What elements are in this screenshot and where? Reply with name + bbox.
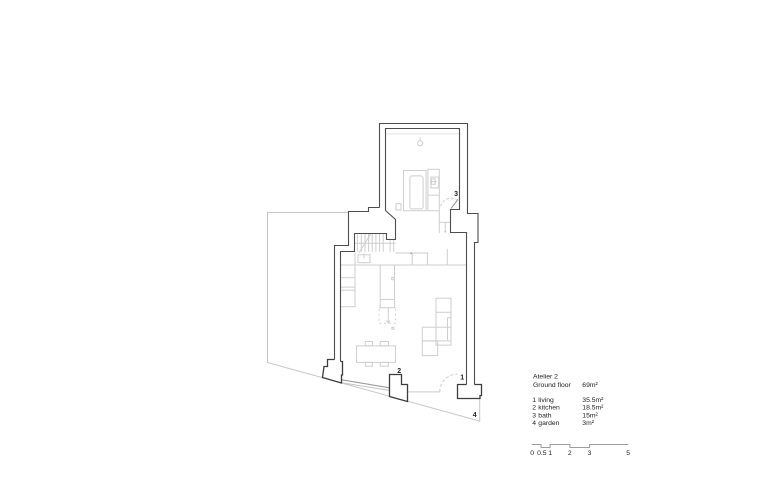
svg-text:kitchen: kitchen xyxy=(538,405,560,412)
svg-text:2: 2 xyxy=(568,450,572,457)
svg-text:0.5: 0.5 xyxy=(537,450,547,457)
svg-text:1: 1 xyxy=(460,374,464,381)
svg-text:1: 1 xyxy=(532,397,536,404)
svg-text:4: 4 xyxy=(532,420,536,427)
svg-text:3: 3 xyxy=(588,450,592,457)
svg-text:4: 4 xyxy=(473,412,477,419)
svg-text:69m²: 69m² xyxy=(582,382,598,389)
svg-text:0: 0 xyxy=(530,450,534,457)
svg-text:1: 1 xyxy=(548,450,552,457)
svg-text:Atelier 2: Atelier 2 xyxy=(533,374,558,381)
svg-text:3: 3 xyxy=(532,412,536,419)
svg-text:2: 2 xyxy=(532,405,536,412)
svg-text:garden: garden xyxy=(538,420,559,427)
svg-text:3m²: 3m² xyxy=(582,420,594,427)
svg-text:15m²: 15m² xyxy=(582,412,598,419)
svg-text:5: 5 xyxy=(626,450,630,457)
svg-text:18.5m²: 18.5m² xyxy=(582,405,604,412)
svg-text:2: 2 xyxy=(397,368,401,375)
svg-text:35.5m²: 35.5m² xyxy=(582,397,604,404)
svg-text:Ground floor: Ground floor xyxy=(533,382,572,389)
svg-text:3: 3 xyxy=(454,191,458,198)
svg-text:bath: bath xyxy=(538,412,551,419)
svg-text:living: living xyxy=(538,397,554,404)
